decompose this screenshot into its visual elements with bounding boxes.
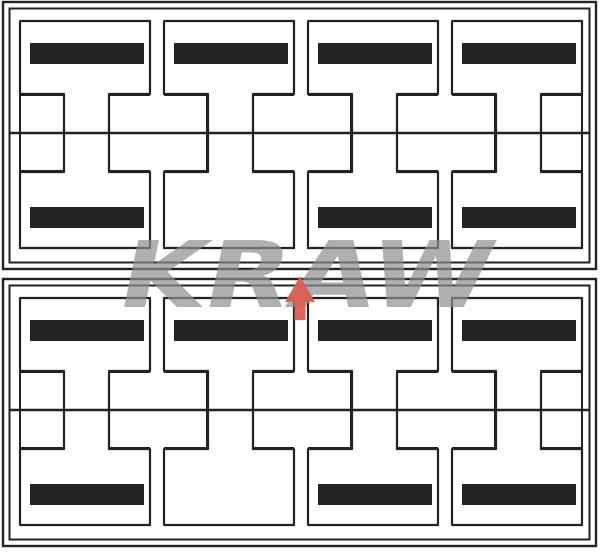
top-flange-bar — [318, 43, 432, 64]
nesting-diagram: KRAW — [0, 0, 600, 552]
bottom-flange-bar — [30, 207, 144, 228]
bottom-flange-bar — [30, 484, 144, 505]
top-flange-bar — [174, 43, 288, 64]
watermark-group: KRAW — [109, 222, 504, 329]
watermark-text: KRAW — [109, 222, 504, 329]
top-flange-bar — [462, 43, 576, 64]
bottom-flange-bar — [318, 484, 432, 505]
top-flange-bar — [30, 43, 144, 64]
diagram-canvas: KRAW — [0, 0, 600, 552]
bottom-flange-bar — [462, 484, 576, 505]
